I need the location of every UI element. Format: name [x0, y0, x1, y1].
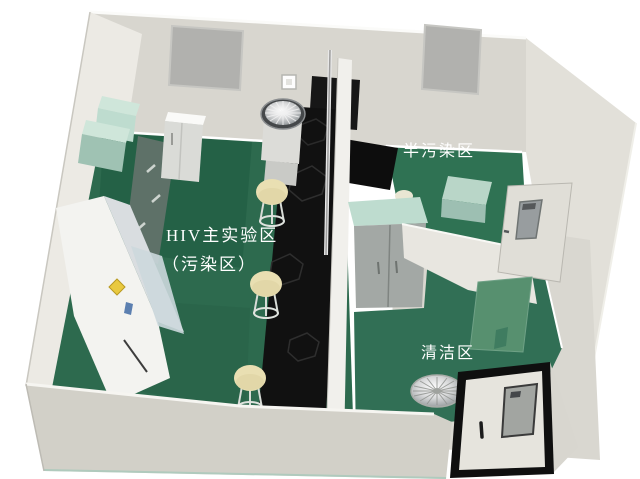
- wardrobe-handle-left: [378, 262, 379, 274]
- lab-3d-render: HIV主实验区 （污染区） 半污染区 清洁区: [0, 0, 640, 479]
- inner-door-handle: [504, 231, 509, 232]
- light-switch-button: [286, 79, 292, 85]
- entrance-door-handle: [481, 423, 482, 437]
- lab-scene-svg: HIV主实验区 （污染区） 半污染区 清洁区: [0, 0, 640, 479]
- clean-door-label: [494, 327, 508, 349]
- entrance-door-window-label: [510, 391, 521, 398]
- back-wall-window-right: [422, 25, 481, 94]
- wardrobe-top: [348, 197, 428, 226]
- main-zone-label-line1: HIV主实验区: [166, 226, 278, 245]
- exhaust-fan: [411, 375, 463, 407]
- fan-hub: [433, 388, 441, 394]
- inner-door-window-label: [522, 203, 536, 210]
- back-wall-window-left: [169, 26, 243, 90]
- main-zone-label-line2: （污染区）: [162, 255, 257, 274]
- wardrobe-handle-right: [396, 261, 397, 273]
- semi-zone-label: 半污染区: [403, 142, 475, 160]
- clean-zone-label: 清洁区: [421, 344, 475, 362]
